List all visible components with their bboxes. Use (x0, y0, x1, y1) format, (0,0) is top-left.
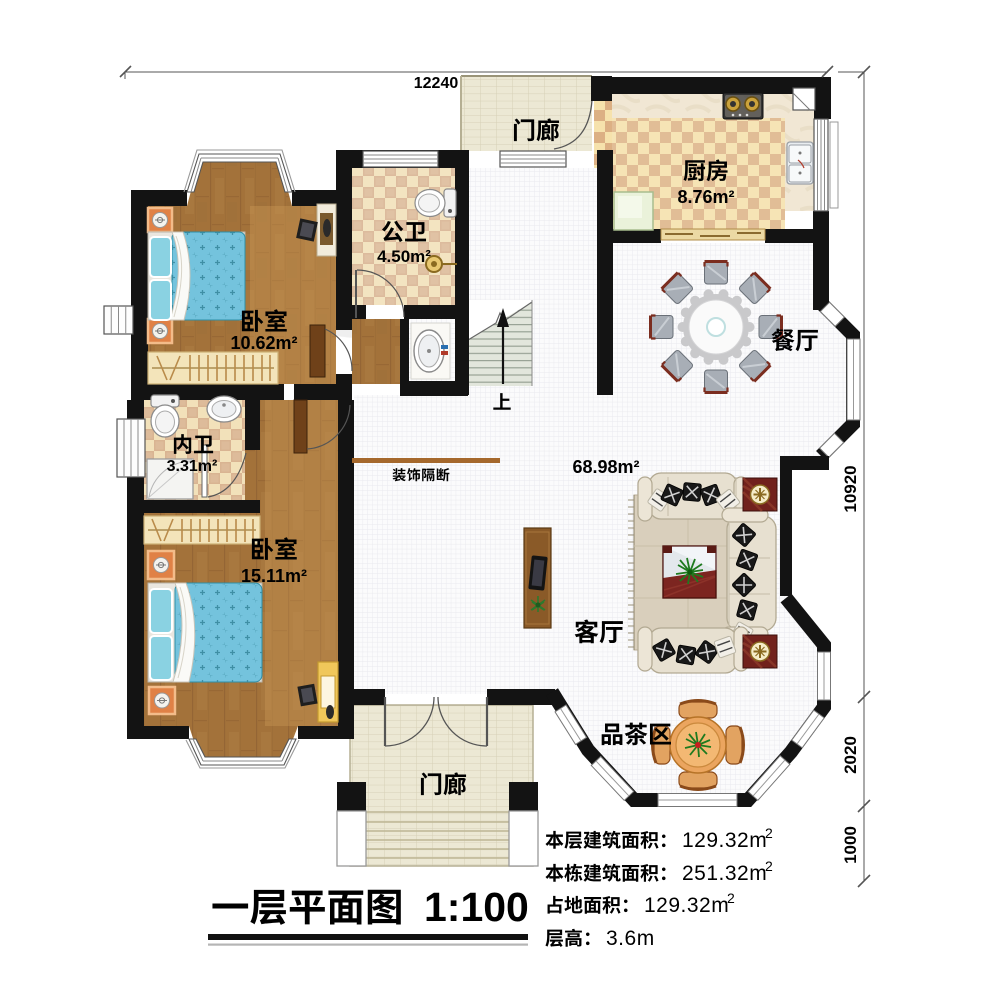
svg-text:1:100: 1:100 (424, 884, 529, 930)
svg-text:12240: 12240 (414, 75, 459, 92)
svg-text:10.62m²: 10.62m² (230, 333, 297, 353)
svg-text:2: 2 (765, 825, 773, 841)
svg-text:68.98m²: 68.98m² (572, 457, 639, 477)
svg-text:3.6m: 3.6m (606, 927, 655, 950)
svg-text:3.31m²: 3.31m² (167, 458, 218, 475)
svg-text:251.32m: 251.32m (682, 862, 767, 885)
svg-text:2020: 2020 (841, 736, 860, 774)
svg-text:15.11m²: 15.11m² (241, 566, 307, 586)
svg-text:2: 2 (727, 890, 735, 906)
svg-text:10920: 10920 (841, 465, 860, 512)
svg-text:1000: 1000 (841, 826, 860, 864)
svg-text:129.32m: 129.32m (644, 894, 729, 917)
svg-text:4.50m²: 4.50m² (377, 247, 431, 266)
svg-text:129.32m: 129.32m (682, 829, 767, 852)
svg-text:2: 2 (765, 858, 773, 874)
svg-text:8.76m²: 8.76m² (677, 187, 734, 207)
